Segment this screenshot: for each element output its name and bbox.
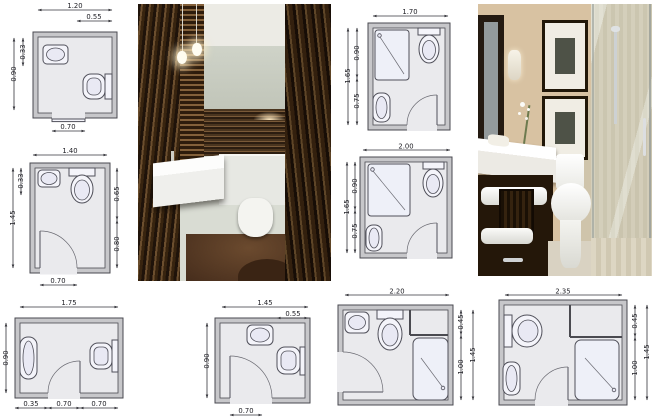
shower-icon (575, 340, 619, 400)
sink-icon (20, 337, 37, 379)
dim-label: 0.90 (10, 66, 18, 81)
door-handle-icon (643, 118, 646, 156)
shower-icon (368, 164, 410, 216)
wall-sconce-icon (508, 50, 522, 80)
soap-dish (488, 133, 509, 146)
mirror-glass (484, 22, 499, 152)
dim-label: 1.45 (643, 344, 651, 359)
glass-frame-edge (649, 4, 651, 276)
back-wall (196, 46, 293, 112)
toilet-icon (423, 162, 444, 197)
shower-bar-icon (614, 31, 617, 123)
shower-floor (591, 238, 652, 276)
dim-label: 0.70 (50, 277, 65, 285)
shower-head-icon (611, 26, 620, 32)
drawer-handle (503, 258, 522, 262)
dim-label: 1.00 (457, 359, 465, 374)
shower-icon (375, 30, 409, 80)
sink-icon (345, 312, 369, 333)
sink-icon (43, 45, 68, 64)
dim-label: 0.70 (56, 400, 71, 408)
pendant-light-icon (192, 43, 202, 56)
dim-label: 2.00 (398, 143, 413, 151)
dim-label: 2.20 (389, 288, 404, 296)
toilet-icon (83, 74, 112, 99)
collage-canvas: 1.20 0.55 0.90 0.33 0.70 1.40 1.45 0.33 … (0, 0, 659, 419)
toilet (551, 154, 591, 268)
dim-label: 0.80 (113, 236, 121, 251)
floorplan-5: 1.70 1.65 0.90 0.75 (342, 0, 462, 140)
dim-label: 1.65 (343, 199, 351, 214)
wall-hung-toilet (238, 198, 273, 237)
dim-label: 0.90 (353, 45, 361, 60)
toilet-icon (277, 347, 305, 375)
spotlight-glow (254, 112, 285, 120)
dim-label: 1.20 (67, 2, 82, 10)
floorplan-1: 1.20 0.55 0.90 0.33 0.70 (8, 0, 138, 146)
framed-art (542, 20, 588, 91)
sink-icon (366, 225, 382, 251)
dim-label: 1.45 (257, 299, 272, 307)
dim-label: 0.65 (113, 186, 121, 201)
toilet-base (560, 220, 581, 268)
dim-label: 2.35 (555, 288, 570, 296)
toilet-seat (551, 183, 591, 224)
pendant-cord (196, 4, 197, 46)
glass-frame-edge (592, 4, 594, 276)
dim-label: 1.00 (631, 360, 639, 375)
toilet-icon (69, 168, 95, 203)
dim-label: 0.75 (351, 223, 359, 238)
dim-label: 0.90 (2, 350, 10, 365)
vanity-cabinet (478, 175, 553, 276)
floorplan-8: 2.35 0.45 1.00 1.45 (487, 288, 659, 415)
art-photo (555, 38, 575, 75)
sink-icon (247, 325, 273, 345)
rolled-towels (481, 228, 533, 244)
dim-label: 0.35 (23, 400, 38, 408)
shower-tile-wall (591, 4, 652, 276)
dim-label: 0.70 (238, 407, 253, 415)
toilet-icon (90, 340, 118, 372)
floorplan-2: 1.40 1.45 0.33 0.65 0.80 0.70 (6, 146, 138, 294)
pendant-light-icon (177, 51, 187, 64)
dim-label: 1.45 (9, 210, 17, 225)
orchid-flowers (520, 102, 525, 107)
wood-slat-wall-right (285, 4, 331, 281)
toilet-icon (377, 310, 403, 350)
dim-label: 0.90 (203, 353, 211, 368)
floorplan-7: 2.20 0.45 1.00 1.45 (332, 288, 480, 415)
sink-icon (503, 362, 520, 395)
toilet-icon (418, 28, 440, 63)
dim-label: 1.65 (344, 68, 352, 83)
art-photo (555, 112, 575, 144)
floating-vanity (153, 155, 224, 208)
dim-label: 0.33 (17, 173, 25, 188)
dim-label: 1.40 (62, 147, 77, 155)
sliding-door-icon (52, 119, 85, 122)
toilet-icon (504, 315, 542, 347)
dim-label: 0.75 (353, 93, 361, 108)
dim-label: 0.33 (19, 44, 27, 59)
shower-icon (413, 338, 448, 400)
dim-label: 0.55 (285, 310, 300, 318)
wood-slat-wall-left (138, 4, 180, 281)
dim-label: 0.45 (457, 314, 465, 329)
photo-bathroom (478, 4, 652, 276)
sink-icon (373, 93, 390, 122)
dim-label: 0.45 (631, 313, 639, 328)
sink-icon (38, 170, 60, 187)
dim-label: 0.70 (60, 123, 75, 131)
floorplan-3: 1.75 0.90 0.35 0.70 0.70 (0, 295, 146, 419)
dim-label: 0.55 (86, 13, 101, 21)
dim-label: 1.70 (402, 8, 417, 16)
floorplan-6: 2.00 1.65 0.90 0.75 (342, 143, 462, 265)
dim-label: 0.90 (351, 178, 359, 193)
dim-label: 1.75 (61, 299, 76, 307)
floorplan-4: 1.45 0.55 0.90 0.70 (203, 295, 325, 419)
dim-label: 0.70 (91, 400, 106, 408)
pendant-cord (182, 4, 183, 54)
photo-powder-room (138, 4, 331, 281)
dim-label: 1.45 (469, 347, 477, 362)
